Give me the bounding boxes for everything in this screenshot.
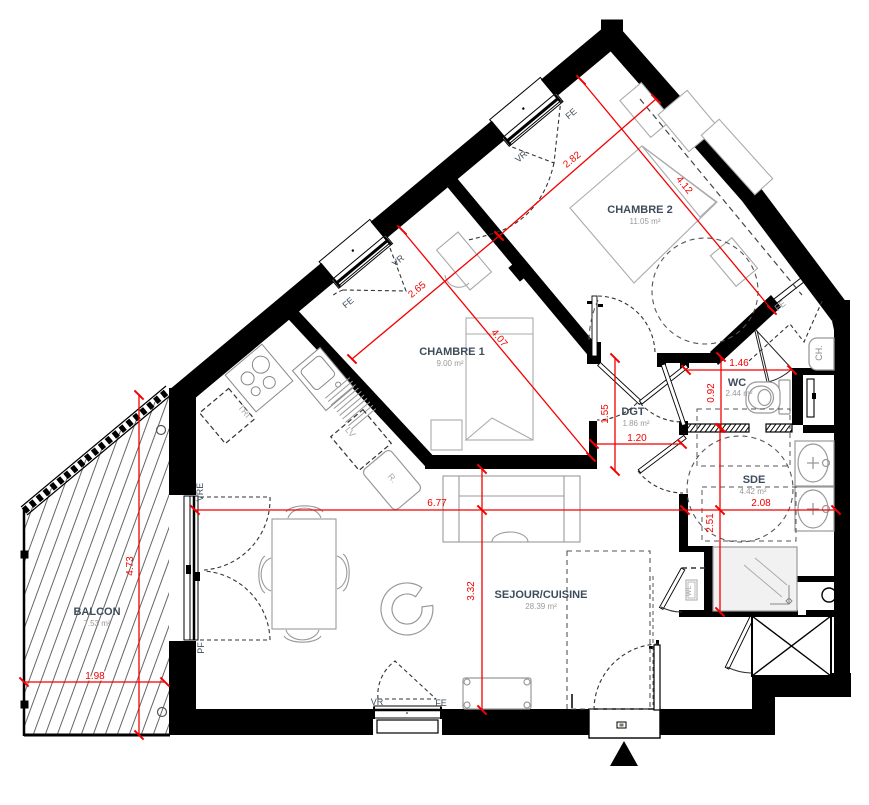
svg-text:CHAMBRE 2: CHAMBRE 2 (607, 204, 672, 216)
svg-text:CH.: CH. (814, 345, 824, 361)
svg-text:1.55: 1.55 (600, 404, 611, 424)
svg-text:WL: WL (686, 586, 693, 597)
svg-text:1.86 m²: 1.86 m² (622, 419, 649, 428)
svg-text:FE: FE (435, 698, 447, 708)
svg-text:1.46: 1.46 (729, 358, 749, 369)
svg-text:2.44 m²: 2.44 m² (725, 389, 752, 398)
svg-text:BALCON: BALCON (73, 606, 120, 618)
svg-text:4.42 m²: 4.42 m² (739, 487, 766, 496)
svg-text:4.73: 4.73 (125, 556, 136, 576)
svg-text:VR: VR (371, 697, 384, 707)
svg-text:1.98: 1.98 (85, 671, 105, 682)
svg-text:SDE: SDE (743, 474, 766, 486)
svg-text:0.92: 0.92 (706, 383, 717, 403)
svg-text:2.51: 2.51 (705, 513, 716, 533)
svg-text:2.08: 2.08 (751, 498, 771, 509)
svg-text:SEJOUR/CUISINE: SEJOUR/CUISINE (495, 589, 588, 601)
svg-text:7.53 m²: 7.53 m² (83, 619, 110, 628)
svg-text:28.39 m²: 28.39 m² (525, 602, 557, 611)
svg-text:PF: PF (196, 642, 206, 654)
svg-text:6.77: 6.77 (427, 498, 447, 509)
svg-text:1.20: 1.20 (627, 433, 647, 444)
svg-text:9.00 m²: 9.00 m² (436, 359, 463, 368)
svg-text:DGT: DGT (621, 406, 645, 418)
svg-text:WC: WC (728, 377, 746, 389)
svg-text:3.32: 3.32 (466, 581, 477, 601)
svg-text:11.05 m²: 11.05 m² (630, 217, 661, 226)
svg-text:CHAMBRE 1: CHAMBRE 1 (419, 346, 484, 358)
svg-text:VRE: VRE (195, 483, 205, 502)
